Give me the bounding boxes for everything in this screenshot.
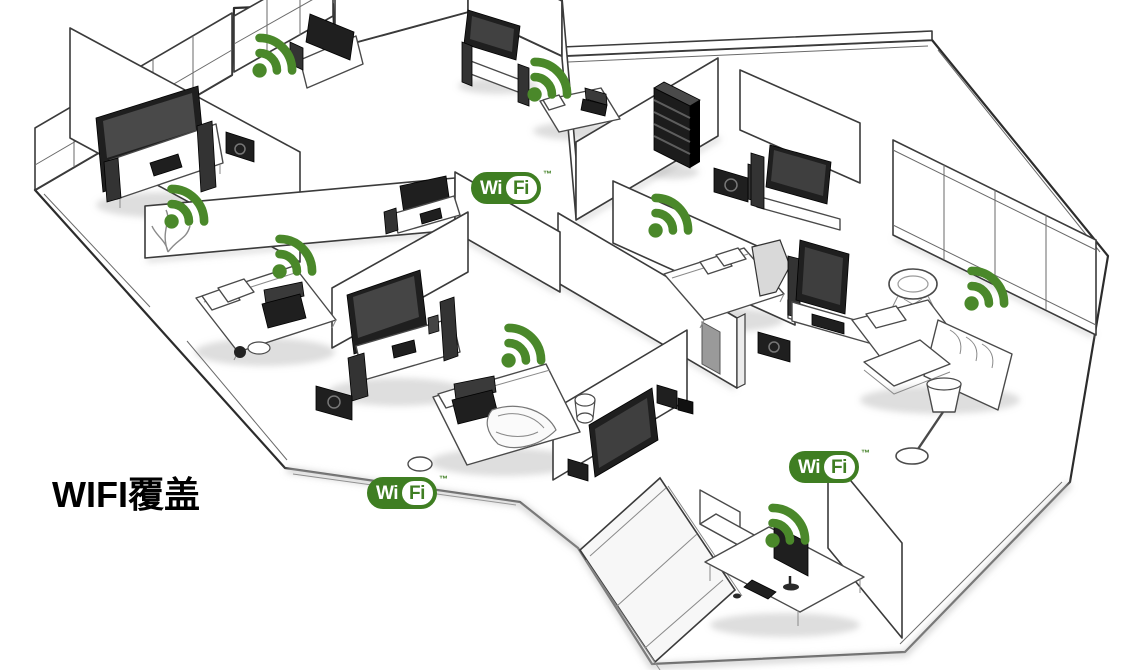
wifi-logo-capsule: Wi Fi xyxy=(789,451,859,483)
trademark-symbol: ™ xyxy=(439,475,448,484)
wifi-logo-capsule: Wi Fi xyxy=(471,172,541,204)
wifi-signal-icon xyxy=(501,316,553,368)
wifi-signal-icon xyxy=(272,227,324,279)
wifi-signal-icon xyxy=(252,26,304,78)
trademark-symbol: ™ xyxy=(861,449,870,458)
wifi-logo-fi: Fi xyxy=(824,455,855,479)
wifi-logo-fi: Fi xyxy=(506,176,537,200)
wifi-signal-icon xyxy=(765,496,817,548)
page-title: WIFI覆盖 xyxy=(52,466,200,518)
wifi-logo-wi: Wi xyxy=(480,179,506,198)
wifi-logo-wi: Wi xyxy=(376,484,402,503)
wifi-logo: Wi Fi ™ xyxy=(789,451,870,483)
wifi-signal-icon xyxy=(648,186,700,238)
wifi-signal-icon xyxy=(164,177,216,229)
wifi-logo: Wi Fi ™ xyxy=(471,172,552,204)
wifi-coverage-illustration: .wall{fill:#ffffff;stroke:#3b3b3b;stroke… xyxy=(0,0,1140,670)
wifi-signal-icon xyxy=(527,50,579,102)
wifi-logo-fi: Fi xyxy=(402,481,433,505)
trademark-symbol: ™ xyxy=(543,170,552,179)
wifi-logo-wi: Wi xyxy=(798,458,824,477)
wifi-logo: Wi Fi ™ xyxy=(367,477,448,509)
wifi-logo-capsule: Wi Fi xyxy=(367,477,437,509)
wifi-signal-icon xyxy=(964,259,1016,311)
